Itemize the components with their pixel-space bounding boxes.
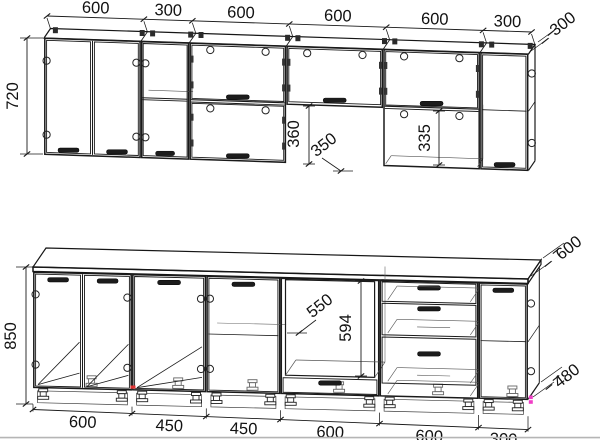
handle bbox=[156, 151, 175, 155]
handle bbox=[494, 163, 515, 167]
handle bbox=[493, 288, 514, 292]
base-drawer-unit-600 bbox=[380, 281, 479, 399]
wall-bracket bbox=[285, 35, 290, 41]
wall-bracket bbox=[479, 41, 484, 47]
handle bbox=[48, 278, 69, 282]
handle bbox=[107, 150, 128, 154]
handle bbox=[420, 101, 443, 105]
dim-gap-annotation: 350 bbox=[308, 129, 341, 160]
upper-cabinets-row bbox=[43, 27, 535, 170]
dim-oven-width: 550 bbox=[304, 290, 337, 321]
kitchen-cabinet-drawing: 6003006006006003007203003603503356004504… bbox=[0, 0, 600, 440]
dim-counter-depth: 600 bbox=[553, 232, 586, 263]
wall-bracket bbox=[140, 30, 145, 36]
handle bbox=[232, 282, 255, 286]
dim-upper-width-2: 600 bbox=[227, 3, 255, 22]
upper-flip-360 bbox=[287, 46, 382, 107]
dim-upper-height: 720 bbox=[4, 82, 22, 110]
base-cabinet-two-door-600 bbox=[32, 272, 131, 390]
wall-bracket bbox=[199, 32, 204, 38]
handle bbox=[418, 352, 441, 356]
handle bbox=[58, 148, 79, 152]
handle bbox=[226, 95, 249, 99]
dim-upper-depth: 300 bbox=[547, 8, 580, 39]
handle bbox=[323, 98, 346, 102]
dim-base-width-0: 600 bbox=[69, 413, 97, 432]
handle bbox=[158, 280, 181, 284]
cad-artifact-magenta bbox=[529, 400, 533, 404]
dim-open-gap: 360 bbox=[285, 120, 303, 148]
dim-base-width-1: 450 bbox=[155, 416, 183, 435]
handle bbox=[418, 286, 441, 290]
dim-oven-height: 594 bbox=[337, 314, 355, 342]
base-cabinet-door-450-a bbox=[133, 275, 206, 392]
dim-upper-width-4: 600 bbox=[421, 10, 449, 29]
dim-upper-width-0: 600 bbox=[82, 0, 110, 18]
upper-double-flip-600 bbox=[190, 43, 285, 162]
dim-base-height: 850 bbox=[2, 322, 20, 350]
handle bbox=[97, 279, 118, 283]
technical-drawing-svg: 6003006006006003007203003603503356004504… bbox=[0, 0, 600, 440]
upper-end-cabinet-300 bbox=[481, 45, 536, 171]
dim-upper-width-5: 300 bbox=[493, 12, 521, 31]
handle bbox=[418, 307, 441, 311]
upper-open-shelf-300 bbox=[142, 42, 193, 160]
wall-bracket bbox=[150, 30, 155, 36]
wall-bracket bbox=[53, 27, 58, 33]
dim-base-depth: 480 bbox=[551, 360, 584, 391]
cad-artifact-magenta bbox=[529, 396, 533, 400]
wall-bracket bbox=[392, 38, 397, 44]
base-oven-cabinet-600 bbox=[281, 267, 385, 396]
base-cabinet-door-450-b bbox=[206, 276, 286, 393]
base-cabinets-row bbox=[32, 248, 541, 414]
cad-artifact-red bbox=[131, 386, 136, 389]
dim-upper-width-3: 600 bbox=[324, 7, 352, 26]
wall-bracket bbox=[528, 43, 533, 49]
dim-upper-width-1: 300 bbox=[154, 1, 182, 20]
upper-cabinet-two-door-600 bbox=[43, 38, 140, 157]
wall-bracket bbox=[382, 38, 387, 44]
wall-bracket bbox=[489, 42, 494, 48]
wall-bracket bbox=[295, 35, 300, 41]
dim-base-width-2: 450 bbox=[229, 419, 257, 438]
handle bbox=[226, 154, 249, 158]
wall-bracket bbox=[188, 32, 193, 38]
dim-upper-niche: 335 bbox=[416, 124, 434, 152]
base-end-cabinet-300 bbox=[479, 267, 539, 399]
dim-base-width-5: 300 bbox=[489, 430, 517, 440]
handle bbox=[319, 381, 342, 385]
